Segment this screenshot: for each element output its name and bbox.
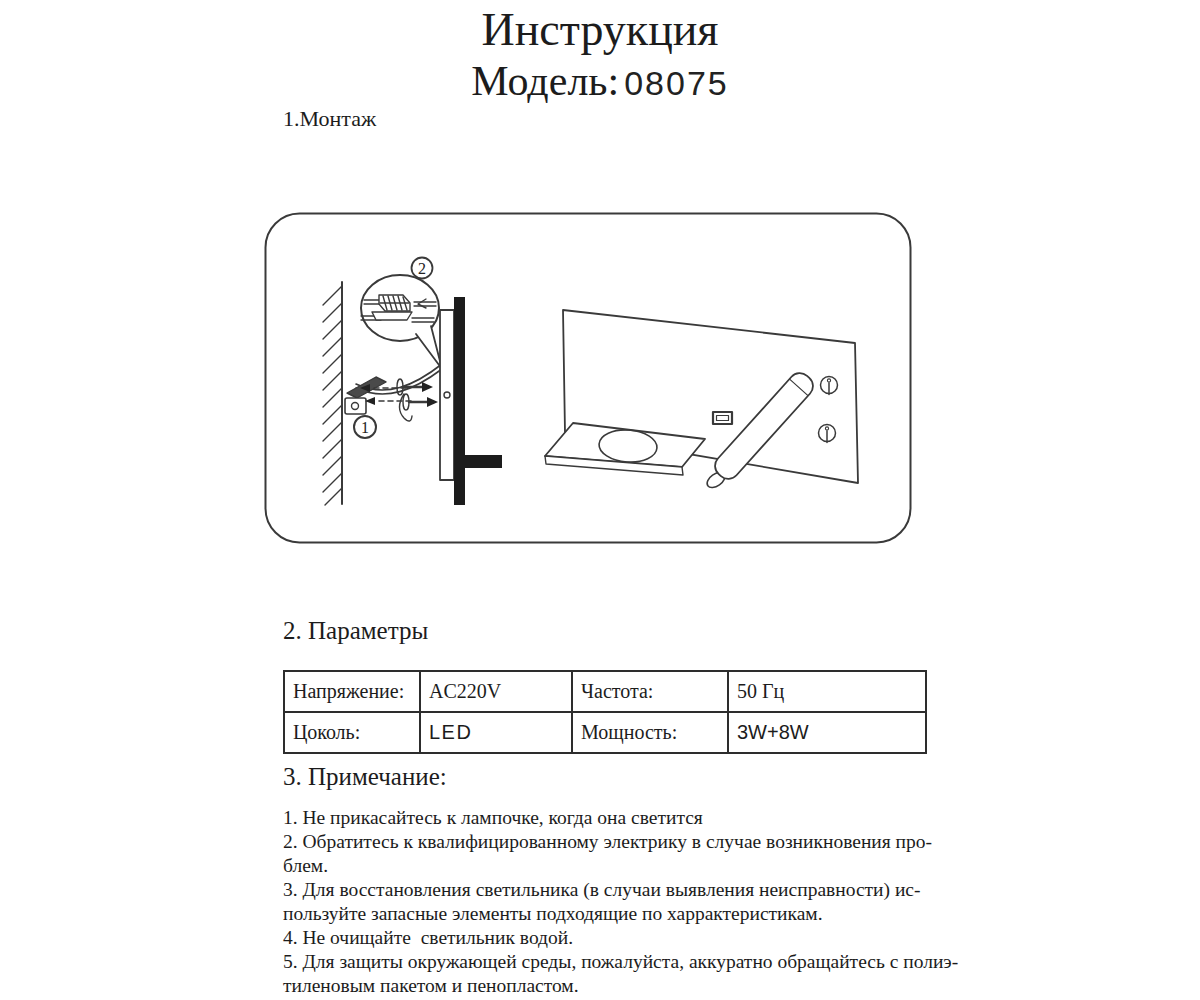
note-line: 5. Для защиты окружающей среды, пожалуйс… <box>283 950 958 974</box>
callout-1-badge: 1 <box>354 416 376 438</box>
usb-port <box>713 412 732 424</box>
note-line: блем. <box>283 854 958 878</box>
note-line: пользуйте запасные элементы подходящие п… <box>283 902 958 926</box>
note-line: тиленовым пакетом и пенопластом. <box>283 974 958 998</box>
param-value: LED <box>420 712 572 753</box>
param-value: 50 Гц <box>728 671 926 712</box>
section-heading-notes: 3. Примечание: <box>283 763 447 791</box>
section-heading-parameters: 2. Параметры <box>283 617 428 645</box>
section-heading-montage: 1.Монтаж <box>283 106 376 132</box>
note-line: 1. Не прикасайтесь к лампочке, когда она… <box>283 806 958 830</box>
model-number: 08075 <box>624 64 729 102</box>
callout-2-badge: 2 <box>412 258 433 279</box>
param-label: Цоколь: <box>284 712 420 753</box>
installation-diagram: 2 1 <box>264 212 912 544</box>
table-row: Цоколь: LED Мощность: 3W+8W <box>284 712 926 753</box>
note-line: 4. Не очищайте светильник водой. <box>283 926 958 950</box>
param-value: AC220V <box>420 671 572 712</box>
table-row: Напряжение: AC220V Частота: 50 Гц <box>284 671 926 712</box>
parameters-table: Напряжение: AC220V Частота: 50 Гц Цоколь… <box>283 670 927 754</box>
param-value: 3W+8W <box>728 712 926 753</box>
param-label: Частота: <box>572 671 728 712</box>
callout-1-label: 1 <box>361 419 369 436</box>
param-label: Напряжение: <box>284 671 420 712</box>
notes-list: 1. Не прикасайтесь к лампочке, когда она… <box>283 806 958 998</box>
note-line: 3. Для восстановления светильника (в слу… <box>283 878 958 902</box>
model-label: Модель: <box>471 58 619 104</box>
page-title: Инструкция <box>0 4 1200 56</box>
note-line: 2. Обратитесь к квалифицированному элект… <box>283 830 958 854</box>
model-line: Модель:08075 <box>0 56 1200 108</box>
param-label: Мощность: <box>572 712 728 753</box>
callout-2-label: 2 <box>418 260 426 277</box>
